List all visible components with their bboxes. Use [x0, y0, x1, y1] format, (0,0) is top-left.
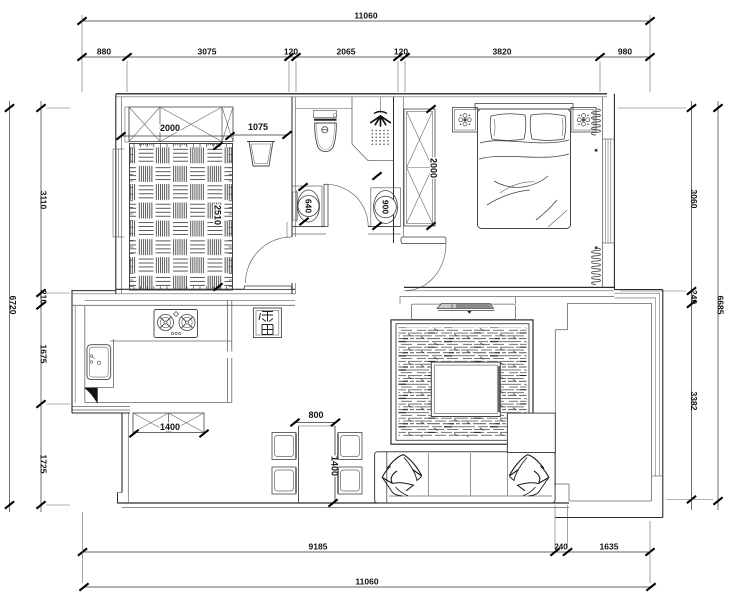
svg-text:980: 980	[618, 47, 632, 57]
svg-text:1075: 1075	[248, 122, 268, 132]
svg-text:120: 120	[394, 47, 408, 57]
svg-text:800: 800	[308, 410, 323, 420]
svg-text:2065: 2065	[337, 47, 356, 57]
svg-text:11060: 11060	[354, 11, 377, 21]
svg-text:3110: 3110	[39, 191, 49, 210]
svg-text:3060: 3060	[689, 190, 699, 209]
svg-text:6720: 6720	[8, 296, 18, 315]
svg-text:1635: 1635	[600, 542, 619, 552]
svg-text:240: 240	[554, 543, 568, 552]
svg-text:9185: 9185	[309, 542, 328, 552]
svg-text:3820: 3820	[493, 47, 512, 57]
svg-text:120: 120	[284, 47, 298, 57]
svg-text:6685: 6685	[716, 296, 726, 315]
svg-text:3382: 3382	[689, 392, 699, 411]
svg-text:210: 210	[39, 290, 49, 304]
svg-text:240: 240	[689, 290, 699, 304]
svg-text:3075: 3075	[198, 47, 217, 57]
svg-text:1675: 1675	[39, 345, 49, 364]
svg-text:2000: 2000	[429, 158, 439, 178]
svg-text:1725: 1725	[39, 455, 49, 474]
svg-text:11060: 11060	[355, 577, 378, 587]
svg-text:640: 640	[304, 199, 314, 213]
svg-text:880: 880	[97, 47, 111, 57]
svg-text:900: 900	[381, 200, 391, 214]
svg-text:2510: 2510	[213, 205, 223, 225]
svg-text:1400: 1400	[160, 422, 180, 432]
svg-text:2000: 2000	[160, 123, 180, 133]
